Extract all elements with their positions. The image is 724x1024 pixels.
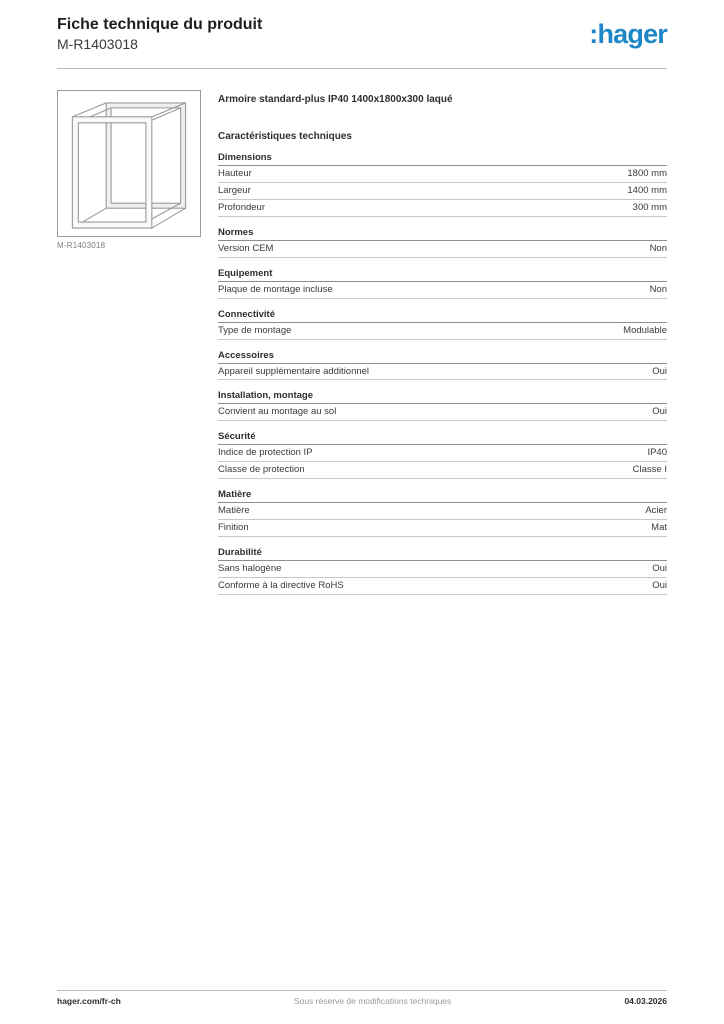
spec-section: Installation, montage Convient au montag… xyxy=(218,390,667,421)
product-image xyxy=(57,90,201,237)
footer: hager.com/fr-ch Sous réserve de modifica… xyxy=(57,996,667,1006)
section-rows: Appareil supplémentaire additionnel Oui xyxy=(218,364,667,381)
spec-section: Dimensions Hauteur 1800 mm Largeur 1400 … xyxy=(218,152,667,217)
spec-value: Mat xyxy=(641,523,667,534)
spec-row: Convient au montage au sol Oui xyxy=(218,404,667,421)
product-title: Armoire standard-plus IP40 1400x1800x300… xyxy=(218,94,667,105)
product-image-column: M-R1403018 xyxy=(57,90,218,595)
product-reference: M-R1403018 xyxy=(57,35,262,53)
content: M-R1403018 Armoire standard-plus IP40 14… xyxy=(57,90,667,595)
spec-label: Type de montage xyxy=(218,326,291,337)
spec-row: Conforme à la directive RoHS Oui xyxy=(218,578,667,595)
spec-section: Normes Version CEM Non xyxy=(218,227,667,258)
spec-row: Classe de protection Classe I xyxy=(218,462,667,479)
header-titles: Fiche technique du produit M-R1403018 xyxy=(57,15,262,53)
spec-section: Matière Matière Acier Finition Mat xyxy=(218,489,667,537)
spec-label: Appareil supplémentaire additionnel xyxy=(218,367,369,378)
section-rows: Indice de protection IP IP40 Classe de p… xyxy=(218,445,667,479)
spec-row: Plaque de montage incluse Non xyxy=(218,282,667,299)
spec-value: Classe I xyxy=(623,465,667,476)
spec-value: Acier xyxy=(635,506,667,517)
spec-section: Sécurité Indice de protection IP IP40 Cl… xyxy=(218,431,667,479)
spec-row: Hauteur 1800 mm xyxy=(218,166,667,183)
spec-row: Sans halogène Oui xyxy=(218,561,667,578)
section-title: Connectivité xyxy=(218,309,667,323)
spec-value: IP40 xyxy=(637,448,667,459)
spec-row: Type de montage Modulable xyxy=(218,323,667,340)
spec-row: Largeur 1400 mm xyxy=(218,183,667,200)
cabinet-frame-drawing xyxy=(58,91,200,236)
spec-row: Finition Mat xyxy=(218,520,667,537)
section-rows: Type de montage Modulable xyxy=(218,323,667,340)
spec-value: Non xyxy=(640,244,667,255)
document-title: Fiche technique du produit xyxy=(57,15,262,35)
website-link[interactable]: hager.com/fr-ch xyxy=(57,996,121,1006)
header: Fiche technique du produit M-R1403018 :h… xyxy=(57,15,667,53)
spec-section: Equipement Plaque de montage incluse Non xyxy=(218,268,667,299)
section-title: Matière xyxy=(218,489,667,503)
spec-value: 300 mm xyxy=(623,203,667,214)
section-rows: Sans halogène Oui Conforme à la directiv… xyxy=(218,561,667,595)
spec-sections: Dimensions Hauteur 1800 mm Largeur 1400 … xyxy=(218,152,667,595)
spec-label: Finition xyxy=(218,523,249,534)
spec-label: Largeur xyxy=(218,186,251,197)
spec-row: Profondeur 300 mm xyxy=(218,200,667,217)
spec-value: Oui xyxy=(642,581,667,592)
spec-value: Oui xyxy=(642,564,667,575)
spec-label: Plaque de montage incluse xyxy=(218,285,333,296)
header-divider xyxy=(57,68,667,69)
section-rows: Convient au montage au sol Oui xyxy=(218,404,667,421)
spec-row: Matière Acier xyxy=(218,503,667,520)
footer-divider xyxy=(57,990,667,991)
spec-label: Version CEM xyxy=(218,244,273,255)
spec-value: Modulable xyxy=(613,326,667,337)
datasheet-page: Fiche technique du produit M-R1403018 :h… xyxy=(0,0,724,1024)
section-rows: Version CEM Non xyxy=(218,241,667,258)
section-title: Sécurité xyxy=(218,431,667,445)
product-image-caption: M-R1403018 xyxy=(57,241,218,250)
section-title: Dimensions xyxy=(218,152,667,166)
spec-label: Conforme à la directive RoHS xyxy=(218,581,344,592)
section-rows: Plaque de montage incluse Non xyxy=(218,282,667,299)
specs-column: Armoire standard-plus IP40 1400x1800x300… xyxy=(218,90,667,595)
spec-row: Indice de protection IP IP40 xyxy=(218,445,667,462)
footer-date: 04.03.2026 xyxy=(624,996,667,1006)
spec-label: Hauteur xyxy=(218,169,252,180)
section-rows: Hauteur 1800 mm Largeur 1400 mm Profonde… xyxy=(218,166,667,217)
section-title: Equipement xyxy=(218,268,667,282)
spec-label: Convient au montage au sol xyxy=(218,407,336,418)
section-title: Accessoires xyxy=(218,350,667,364)
hager-logo: :hager xyxy=(589,21,667,48)
specs-heading: Caractéristiques techniques xyxy=(218,131,667,142)
spec-value: 1800 mm xyxy=(617,169,667,180)
spec-value: Non xyxy=(640,285,667,296)
spec-row: Version CEM Non xyxy=(218,241,667,258)
spec-row: Appareil supplémentaire additionnel Oui xyxy=(218,364,667,381)
spec-section: Connectivité Type de montage Modulable xyxy=(218,309,667,340)
spec-label: Sans halogène xyxy=(218,564,281,575)
spec-section: Durabilité Sans halogène Oui Conforme à … xyxy=(218,547,667,595)
spec-label: Classe de protection xyxy=(218,465,305,476)
section-rows: Matière Acier Finition Mat xyxy=(218,503,667,537)
spec-section: Accessoires Appareil supplémentaire addi… xyxy=(218,350,667,381)
footer-disclaimer: Sous réserve de modifications techniques xyxy=(294,996,451,1006)
spec-value: 1400 mm xyxy=(617,186,667,197)
section-title: Installation, montage xyxy=(218,390,667,404)
spec-label: Matière xyxy=(218,506,250,517)
spec-label: Profondeur xyxy=(218,203,265,214)
spec-value: Oui xyxy=(642,407,667,418)
section-title: Normes xyxy=(218,227,667,241)
spec-value: Oui xyxy=(642,367,667,378)
section-title: Durabilité xyxy=(218,547,667,561)
spec-label: Indice de protection IP xyxy=(218,448,313,459)
